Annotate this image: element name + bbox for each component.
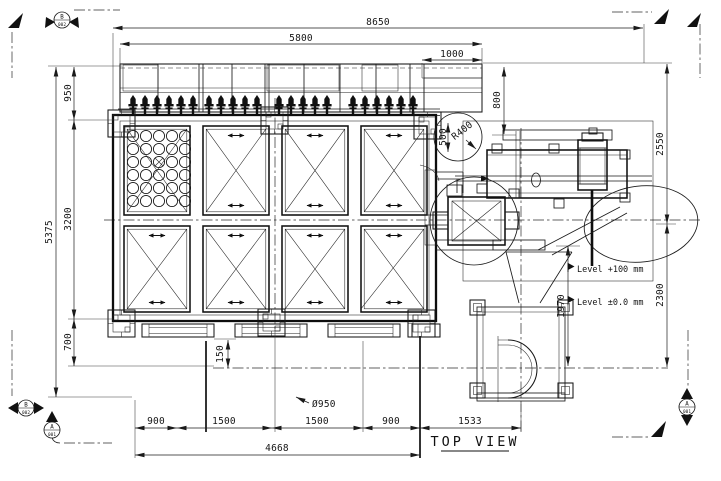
dim-right-lower: 2300	[655, 283, 666, 307]
inclined-chute	[538, 207, 627, 255]
launder-steps	[437, 172, 463, 193]
section-marker-a-bottom: A 001	[44, 411, 60, 443]
dim-height-bottom: 700	[63, 333, 74, 351]
svg-text:B: B	[60, 15, 64, 21]
north-flag-icon	[8, 13, 23, 28]
support-rail	[142, 324, 214, 337]
tank-cell	[282, 226, 348, 312]
dim-pump-offset: 1533	[458, 416, 482, 427]
anchor-pad	[258, 309, 285, 336]
detail-circle: 500 R400	[434, 113, 482, 161]
dim-walkway-drop: 800	[492, 91, 503, 109]
grating-mesh	[362, 65, 398, 91]
dim-bay-b: 1500	[212, 416, 236, 427]
tank-cell	[124, 226, 190, 312]
drawing-sheet: 500 R400 8650 5800 1000 5375 950 3200 70…	[0, 0, 721, 481]
dim-bay-c: 1500	[305, 416, 329, 427]
dim-pipe-diameter: Ø950	[312, 399, 336, 410]
grating-mesh	[424, 78, 482, 112]
svg-text:001: 001	[48, 432, 56, 438]
tank-cell	[282, 126, 348, 215]
rotary-feeder	[425, 177, 519, 265]
svg-text:001: 001	[683, 409, 691, 415]
svg-text:002: 002	[22, 410, 30, 416]
north-flag-icon	[654, 9, 669, 24]
dim-bay-d: 900	[382, 416, 400, 427]
svg-text:B: B	[24, 403, 28, 409]
grating-mesh	[123, 65, 158, 91]
dim-pump-frame: 1970	[556, 294, 567, 318]
tank-cell	[361, 226, 427, 312]
suction-bend	[498, 336, 537, 402]
section-marker-b-left: B 002	[8, 400, 44, 416]
dim-rail-to-axis: 150	[215, 345, 226, 363]
dim-overall-width: 8650	[366, 17, 390, 28]
perforated-cell	[124, 126, 191, 215]
tank-cell	[203, 126, 269, 215]
dim-platform-width: 5800	[289, 33, 313, 44]
north-flag-icon	[651, 421, 666, 437]
dim-detail-500: 500	[438, 128, 449, 146]
inspection-port	[532, 173, 541, 187]
svg-text:A: A	[50, 425, 54, 431]
section-marker-a-right: A 001	[679, 388, 695, 426]
support-bridge	[503, 130, 612, 140]
svg-text:A: A	[685, 402, 689, 408]
dim-height-tank: 3200	[63, 207, 74, 231]
level-high-label: Level +100 mm	[577, 265, 644, 275]
level-flag-icon	[568, 263, 575, 272]
support-rail	[412, 324, 440, 337]
svg-text:002: 002	[58, 22, 66, 28]
conveyor-body	[487, 150, 627, 198]
dim-base-total: 4668	[265, 443, 289, 454]
dim-bay-a: 900	[147, 416, 165, 427]
clarifier-tank	[108, 107, 441, 337]
dim-detail-radius: R400	[450, 119, 475, 142]
level-zero-label: Level ±0.0 mm	[577, 298, 644, 308]
dim-height-top: 950	[63, 84, 74, 102]
grating-mesh	[267, 65, 339, 91]
dimensions: 8650 5800 1000 5375 950 3200 700 800 255…	[44, 17, 676, 458]
drive-motor	[578, 128, 607, 266]
tank-cell	[203, 226, 269, 312]
engineering-drawing: 500 R400 8650 5800 1000 5375 950 3200 70…	[0, 0, 721, 481]
section-marker-b-top: B 002	[45, 12, 79, 28]
support-rail	[235, 324, 307, 337]
support-rail	[328, 324, 400, 337]
dim-platform-ext: 1000	[440, 49, 464, 60]
view-title: TOP VIEW	[430, 434, 519, 450]
north-flag-icon	[687, 13, 701, 27]
dim-right-upper: 2550	[655, 132, 666, 156]
dim-height-total: 5375	[44, 220, 55, 244]
